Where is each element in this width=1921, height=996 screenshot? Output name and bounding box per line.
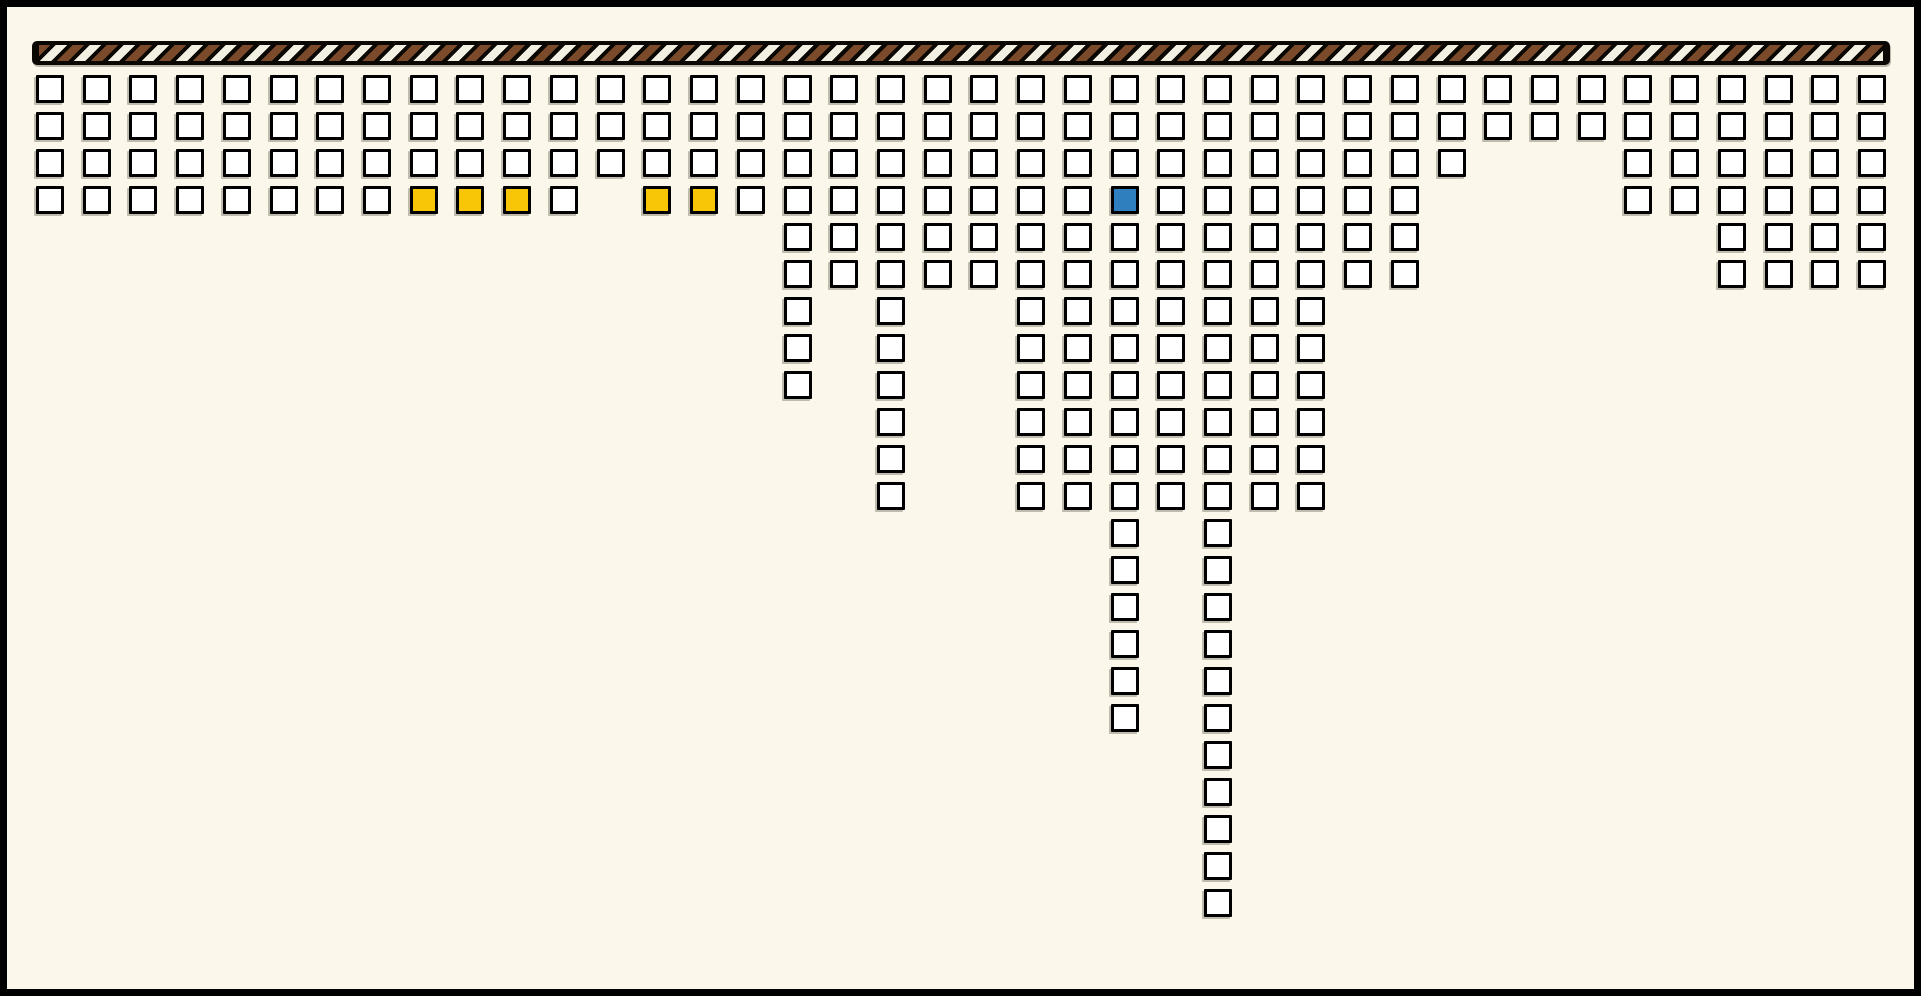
unit-square (1064, 371, 1092, 399)
unit-square (1438, 149, 1466, 177)
unit-square (176, 186, 204, 214)
unit-square (1111, 223, 1139, 251)
unit-square (410, 112, 438, 140)
unit-square (1157, 75, 1185, 103)
unit-square (316, 149, 344, 177)
unit-square (1157, 186, 1185, 214)
unit-square (924, 75, 952, 103)
unit-square (1204, 667, 1232, 695)
unit-square (129, 112, 157, 140)
unit-square (1017, 112, 1045, 140)
unit-square (1017, 371, 1045, 399)
unit-square (1297, 186, 1325, 214)
unit-square (456, 186, 484, 214)
unit-square (1765, 149, 1793, 177)
rope-bar-stripes (39, 45, 1883, 61)
unit-square (1765, 186, 1793, 214)
unit-square (1858, 112, 1886, 140)
unit-square (1111, 371, 1139, 399)
unit-square (1624, 149, 1652, 177)
unit-square (223, 112, 251, 140)
unit-square (1017, 334, 1045, 362)
unit-square (784, 149, 812, 177)
unit-square (643, 75, 671, 103)
unit-square (1484, 112, 1512, 140)
unit-square (1064, 112, 1092, 140)
unit-square (970, 186, 998, 214)
unit-square (1204, 593, 1232, 621)
unit-square (1531, 75, 1559, 103)
unit-square (643, 149, 671, 177)
unit-square (643, 112, 671, 140)
unit-square (1718, 260, 1746, 288)
unit-square (1111, 482, 1139, 510)
unit-square (1624, 186, 1652, 214)
unit-square (1017, 75, 1045, 103)
unit-square (737, 149, 765, 177)
unit-square (1344, 223, 1372, 251)
unit-square (1858, 75, 1886, 103)
unit-square (877, 149, 905, 177)
unit-square (830, 186, 858, 214)
unit-square (1391, 260, 1419, 288)
unit-square (1531, 112, 1559, 140)
unit-square (456, 112, 484, 140)
unit-square (83, 112, 111, 140)
unit-square (1624, 75, 1652, 103)
unit-square (1251, 260, 1279, 288)
unit-square (176, 75, 204, 103)
unit-square (316, 186, 344, 214)
unit-square (1718, 223, 1746, 251)
unit-square (1811, 223, 1839, 251)
unit-square (1111, 186, 1139, 214)
unit-square (1858, 149, 1886, 177)
unit-square (1157, 112, 1185, 140)
unit-square (1811, 112, 1839, 140)
unit-square (1765, 260, 1793, 288)
unit-square (784, 75, 812, 103)
unit-square (877, 334, 905, 362)
unit-square (1204, 297, 1232, 325)
unit-square (830, 260, 858, 288)
unit-square (877, 297, 905, 325)
unit-square (456, 149, 484, 177)
unit-square (830, 75, 858, 103)
unit-square (1204, 112, 1232, 140)
unit-square (877, 260, 905, 288)
unit-square (363, 149, 391, 177)
unit-square (830, 223, 858, 251)
unit-square (1111, 334, 1139, 362)
unit-square (363, 112, 391, 140)
unit-square (1111, 519, 1139, 547)
unit-square (830, 149, 858, 177)
unit-square (1344, 112, 1372, 140)
unit-square (1111, 556, 1139, 584)
unit-square (1111, 149, 1139, 177)
unit-square (1858, 223, 1886, 251)
unit-square (1344, 186, 1372, 214)
unit-square (503, 75, 531, 103)
unit-square (1204, 445, 1232, 473)
unit-square (690, 149, 718, 177)
unit-square (1297, 445, 1325, 473)
unit-square (1204, 260, 1232, 288)
unit-square (1391, 149, 1419, 177)
unit-square (1111, 630, 1139, 658)
unit-square (784, 334, 812, 362)
unit-square (1204, 371, 1232, 399)
unit-square (970, 260, 998, 288)
unit-square (1718, 149, 1746, 177)
unit-square (970, 112, 998, 140)
unit-square (1064, 149, 1092, 177)
unit-square (83, 75, 111, 103)
unit-square (1111, 704, 1139, 732)
unit-square (737, 186, 765, 214)
unit-square (1438, 112, 1466, 140)
unit-square (1251, 75, 1279, 103)
unit-square (1204, 186, 1232, 214)
unit-square (1204, 852, 1232, 880)
unit-square (1017, 186, 1045, 214)
unit-square (1111, 593, 1139, 621)
unit-square (784, 223, 812, 251)
unit-square (924, 112, 952, 140)
unit-square (550, 112, 578, 140)
unit-square (550, 149, 578, 177)
unit-square (1017, 297, 1045, 325)
unit-square (223, 75, 251, 103)
unit-square (550, 186, 578, 214)
unit-square (1344, 75, 1372, 103)
unit-square (784, 186, 812, 214)
unit-square (1251, 482, 1279, 510)
unit-square (1251, 371, 1279, 399)
unit-square (1157, 371, 1185, 399)
unit-square (1811, 186, 1839, 214)
unit-square (1251, 408, 1279, 436)
unit-square (1204, 223, 1232, 251)
unit-square (1064, 260, 1092, 288)
unit-square (1204, 334, 1232, 362)
unit-square (1718, 75, 1746, 103)
unit-square (877, 75, 905, 103)
unit-square (1297, 75, 1325, 103)
unit-square (690, 186, 718, 214)
unit-square (1297, 297, 1325, 325)
unit-square (597, 149, 625, 177)
unit-square (1578, 75, 1606, 103)
unit-square (1111, 260, 1139, 288)
unit-square (1204, 889, 1232, 917)
unit-square (877, 186, 905, 214)
unit-square (1064, 408, 1092, 436)
unit-square (1297, 408, 1325, 436)
unit-square (1111, 408, 1139, 436)
unit-square (83, 186, 111, 214)
unit-square (36, 75, 64, 103)
unit-square (1297, 149, 1325, 177)
unit-square (1204, 630, 1232, 658)
unit-square (1718, 186, 1746, 214)
unit-square (970, 75, 998, 103)
unit-square (1858, 260, 1886, 288)
unit-square (1671, 186, 1699, 214)
unit-square (1017, 149, 1045, 177)
unit-square (223, 186, 251, 214)
unit-square (1624, 112, 1652, 140)
unit-square (550, 75, 578, 103)
unit-square (1297, 482, 1325, 510)
unit-square (1251, 149, 1279, 177)
chart-frame (0, 0, 1921, 996)
unit-square (784, 297, 812, 325)
unit-square (1111, 667, 1139, 695)
unit-square (129, 149, 157, 177)
unit-square (456, 75, 484, 103)
unit-square (1157, 297, 1185, 325)
unit-square (1251, 186, 1279, 214)
unit-square (1765, 75, 1793, 103)
unit-square (83, 149, 111, 177)
unit-square (1765, 223, 1793, 251)
unit-square (1671, 112, 1699, 140)
unit-square (129, 186, 157, 214)
unit-square (1391, 75, 1419, 103)
unit-square (830, 112, 858, 140)
unit-square (1671, 75, 1699, 103)
unit-square (503, 149, 531, 177)
unit-square (1204, 815, 1232, 843)
unit-square (176, 112, 204, 140)
unit-square (1297, 334, 1325, 362)
unit-square (597, 75, 625, 103)
unit-square (877, 482, 905, 510)
unit-square (1251, 445, 1279, 473)
unit-square (1297, 112, 1325, 140)
unit-square (924, 260, 952, 288)
unit-square (1344, 260, 1372, 288)
unit-square (1204, 556, 1232, 584)
unit-square (1111, 112, 1139, 140)
unit-square (1344, 149, 1372, 177)
unit-square (784, 371, 812, 399)
unit-square (316, 112, 344, 140)
unit-square (270, 186, 298, 214)
unit-square (1064, 445, 1092, 473)
unit-square (1811, 260, 1839, 288)
unit-square (1111, 297, 1139, 325)
unit-square (970, 223, 998, 251)
unit-square (1204, 741, 1232, 769)
unit-square (1251, 334, 1279, 362)
unit-square (176, 149, 204, 177)
unit-square (1297, 371, 1325, 399)
unit-square (784, 260, 812, 288)
unit-square (1017, 445, 1045, 473)
unit-square (970, 149, 998, 177)
unit-square (1204, 149, 1232, 177)
unit-square (363, 186, 391, 214)
unit-square (410, 75, 438, 103)
unit-square (877, 371, 905, 399)
unit-square (1064, 223, 1092, 251)
unit-square (1064, 482, 1092, 510)
unit-square (1251, 223, 1279, 251)
unit-square (1204, 519, 1232, 547)
unit-square (1391, 223, 1419, 251)
unit-square (270, 112, 298, 140)
unit-square (1157, 149, 1185, 177)
unit-square (316, 75, 344, 103)
unit-square (924, 149, 952, 177)
unit-square (877, 223, 905, 251)
unit-square (1157, 482, 1185, 510)
unit-square (1297, 260, 1325, 288)
unit-square (1111, 445, 1139, 473)
unit-square (1204, 482, 1232, 510)
unit-square (503, 186, 531, 214)
unit-square (503, 112, 531, 140)
unit-square (690, 75, 718, 103)
unit-square (1484, 75, 1512, 103)
unit-square (1157, 445, 1185, 473)
unit-square (129, 75, 157, 103)
unit-square (1391, 186, 1419, 214)
unit-square (1157, 223, 1185, 251)
unit-square (1017, 223, 1045, 251)
unit-square (270, 75, 298, 103)
unit-square (784, 112, 812, 140)
unit-square (1157, 334, 1185, 362)
unit-square (737, 75, 765, 103)
unit-square (690, 112, 718, 140)
unit-square (363, 75, 391, 103)
unit-square (270, 149, 298, 177)
unit-square (1811, 149, 1839, 177)
unit-square (1017, 408, 1045, 436)
unit-square (1204, 704, 1232, 732)
unit-square (1578, 112, 1606, 140)
unit-square (1111, 75, 1139, 103)
unit-square (36, 149, 64, 177)
unit-square (1204, 75, 1232, 103)
unit-square (924, 186, 952, 214)
unit-square (737, 112, 765, 140)
unit-square (1811, 75, 1839, 103)
unit-square (1017, 482, 1045, 510)
unit-square (1157, 260, 1185, 288)
unit-square (877, 445, 905, 473)
unit-square (1765, 112, 1793, 140)
unit-square (1157, 408, 1185, 436)
unit-square (1297, 223, 1325, 251)
unit-square (1391, 112, 1419, 140)
unit-square (223, 149, 251, 177)
unit-square (1718, 112, 1746, 140)
unit-square (36, 112, 64, 140)
unit-square (1671, 149, 1699, 177)
unit-square (1064, 297, 1092, 325)
unit-square (1858, 186, 1886, 214)
unit-square (1064, 334, 1092, 362)
unit-square (1064, 75, 1092, 103)
unit-square (1204, 408, 1232, 436)
unit-square (643, 186, 671, 214)
unit-square (924, 223, 952, 251)
unit-square (597, 112, 625, 140)
unit-square (1204, 778, 1232, 806)
unit-square (410, 149, 438, 177)
unit-square (877, 408, 905, 436)
unit-square (1017, 260, 1045, 288)
unit-square (1438, 75, 1466, 103)
unit-square (877, 112, 905, 140)
unit-square (410, 186, 438, 214)
hatched-rope-bar (32, 41, 1890, 65)
unit-square (1251, 112, 1279, 140)
unit-square (1064, 186, 1092, 214)
unit-square (36, 186, 64, 214)
unit-square (1251, 297, 1279, 325)
